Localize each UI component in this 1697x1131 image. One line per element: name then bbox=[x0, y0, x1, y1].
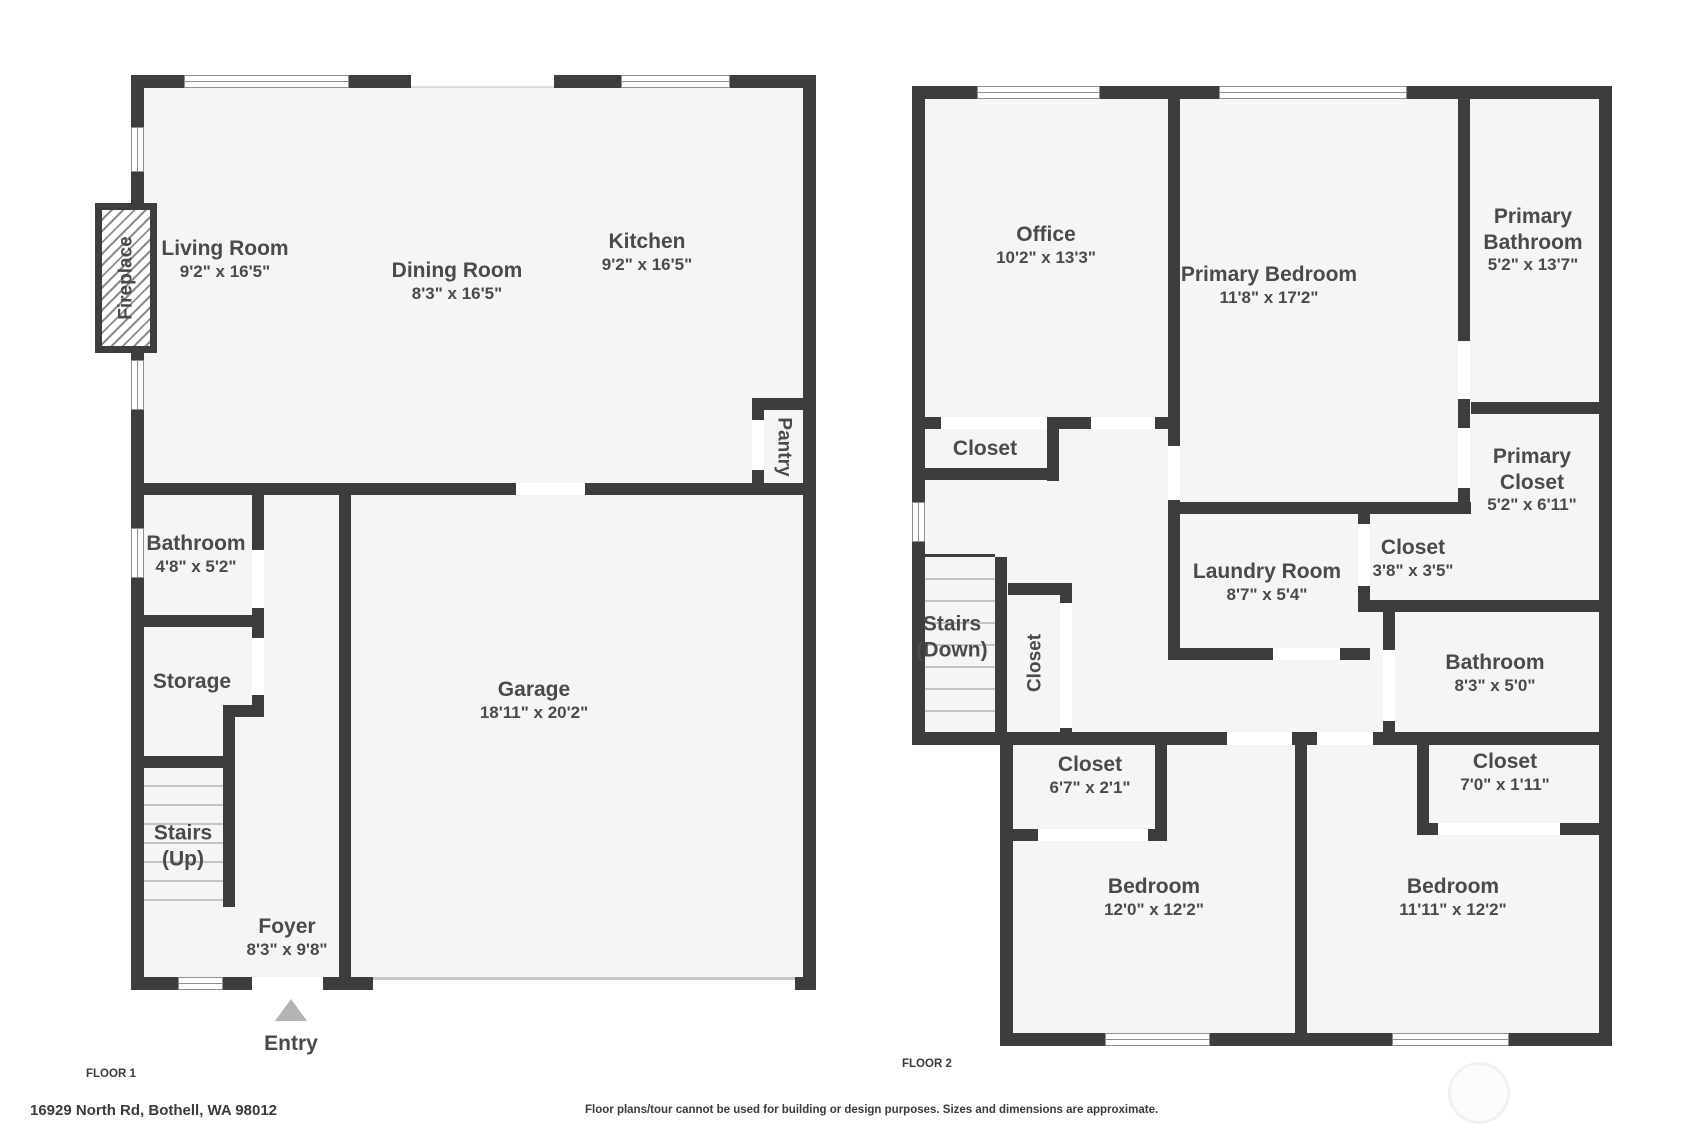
window bbox=[131, 528, 144, 578]
window bbox=[1392, 1033, 1509, 1046]
door-opening bbox=[1358, 524, 1370, 586]
room-label-stairs-up: Stairs (Up) bbox=[154, 820, 212, 871]
door-opening bbox=[752, 420, 764, 470]
room-label-closet-bedroom1: Closet 6'7" x 2'1" bbox=[1050, 752, 1131, 798]
window bbox=[178, 977, 223, 990]
room-label-storage: Storage bbox=[153, 669, 231, 695]
room-label-primary-bedroom: Primary Bedroom 11'8" x 17'2" bbox=[1181, 262, 1357, 308]
door-opening bbox=[516, 483, 585, 495]
wall bbox=[1000, 732, 1013, 1046]
door-opening bbox=[1060, 603, 1072, 728]
wall bbox=[1168, 86, 1180, 430]
door-opening bbox=[1383, 650, 1395, 721]
wall bbox=[912, 468, 1059, 480]
disclaimer-text: Floor plans/tour cannot be used for buil… bbox=[585, 1104, 1158, 1116]
wall bbox=[925, 554, 995, 557]
room-label-bathroom: Bathroom 4'8" x 5'2" bbox=[146, 531, 245, 577]
entry-arrow-icon bbox=[275, 999, 307, 1021]
wall-opening bbox=[411, 75, 554, 88]
floor2-label: FLOOR 2 bbox=[902, 1058, 952, 1070]
wall bbox=[131, 483, 816, 495]
window bbox=[621, 75, 730, 88]
room-label-hall-closet: Closet bbox=[1023, 634, 1046, 692]
wall bbox=[223, 705, 235, 907]
wall bbox=[995, 557, 1007, 745]
door-opening bbox=[1227, 732, 1292, 745]
door-opening bbox=[252, 638, 264, 695]
watermark-circle bbox=[1448, 1062, 1510, 1124]
window bbox=[977, 86, 1100, 99]
room-label-living-room: Living Room 9'2" x 16'5" bbox=[161, 236, 288, 282]
entry-door-opening bbox=[252, 977, 323, 990]
wall bbox=[339, 483, 351, 990]
room-label-bedroom2: Bedroom 11'11" x 12'2" bbox=[1399, 874, 1506, 920]
wall bbox=[1599, 86, 1612, 1046]
room-label-kitchen: Kitchen 9'2" x 16'5" bbox=[602, 229, 692, 275]
floorplan-canvas: Fireplace Living Room 9'2" x 16'5" Dinin… bbox=[0, 0, 1697, 1131]
room-label-bathroom2: Bathroom 8'3" x 5'0" bbox=[1445, 650, 1544, 696]
address-text: 16929 North Rd, Bothell, WA 98012 bbox=[30, 1102, 277, 1119]
window bbox=[131, 127, 144, 172]
room-label-small-closet: Closet 3'8" x 3'5" bbox=[1373, 535, 1454, 581]
room-label-fireplace: Fireplace bbox=[114, 236, 137, 319]
room-label-primary-closet: Primary Closet 5'2" x 6'11" bbox=[1487, 444, 1576, 516]
floor1-label: FLOOR 1 bbox=[86, 1068, 136, 1080]
door-opening bbox=[1091, 417, 1155, 429]
room-label-foyer: Foyer 8'3" x 9'8" bbox=[247, 914, 328, 960]
wall bbox=[1471, 402, 1612, 414]
floor2-footprint-upper bbox=[912, 86, 1612, 745]
window bbox=[184, 75, 349, 88]
door-opening bbox=[1458, 428, 1470, 488]
wall bbox=[131, 756, 235, 768]
window bbox=[1219, 86, 1407, 99]
room-label-office: Office 10'2" x 13'3" bbox=[996, 222, 1096, 268]
door-opening bbox=[1038, 829, 1148, 841]
room-label-bedroom1: Bedroom 12'0" x 12'2" bbox=[1104, 874, 1204, 920]
door-opening bbox=[1273, 648, 1340, 660]
entry-label: Entry bbox=[264, 1032, 318, 1056]
room-label-garage: Garage 18'11" x 20'2" bbox=[480, 677, 588, 723]
garage-door bbox=[373, 977, 795, 990]
window bbox=[131, 360, 144, 410]
wall bbox=[1295, 745, 1307, 1046]
door-opening bbox=[941, 417, 1047, 429]
room-label-dining-room: Dining Room 8'3" x 16'5" bbox=[392, 258, 523, 304]
room-label-stairs-down: Stairs (Down) bbox=[916, 611, 987, 662]
door-opening bbox=[252, 550, 264, 608]
room-label-office-closet: Closet bbox=[953, 436, 1017, 462]
door-opening bbox=[1168, 446, 1180, 500]
window bbox=[912, 502, 925, 542]
door-opening bbox=[1438, 823, 1560, 835]
wall bbox=[131, 615, 264, 627]
room-label-primary-bathroom: Primary Bathroom 5'2" x 13'7" bbox=[1483, 204, 1582, 276]
room-label-pantry: Pantry bbox=[772, 417, 795, 476]
wall bbox=[1417, 745, 1429, 835]
room-label-laundry-room: Laundry Room 8'7" x 5'4" bbox=[1193, 559, 1341, 605]
wall bbox=[1155, 745, 1167, 841]
door-opening bbox=[1458, 341, 1470, 399]
window bbox=[1105, 1033, 1210, 1046]
wall bbox=[803, 75, 816, 990]
wall bbox=[1168, 502, 1471, 514]
room-label-closet-bedroom2: Closet 7'0" x 1'11" bbox=[1460, 749, 1549, 795]
wall bbox=[1358, 600, 1612, 612]
door-opening bbox=[1317, 732, 1373, 745]
